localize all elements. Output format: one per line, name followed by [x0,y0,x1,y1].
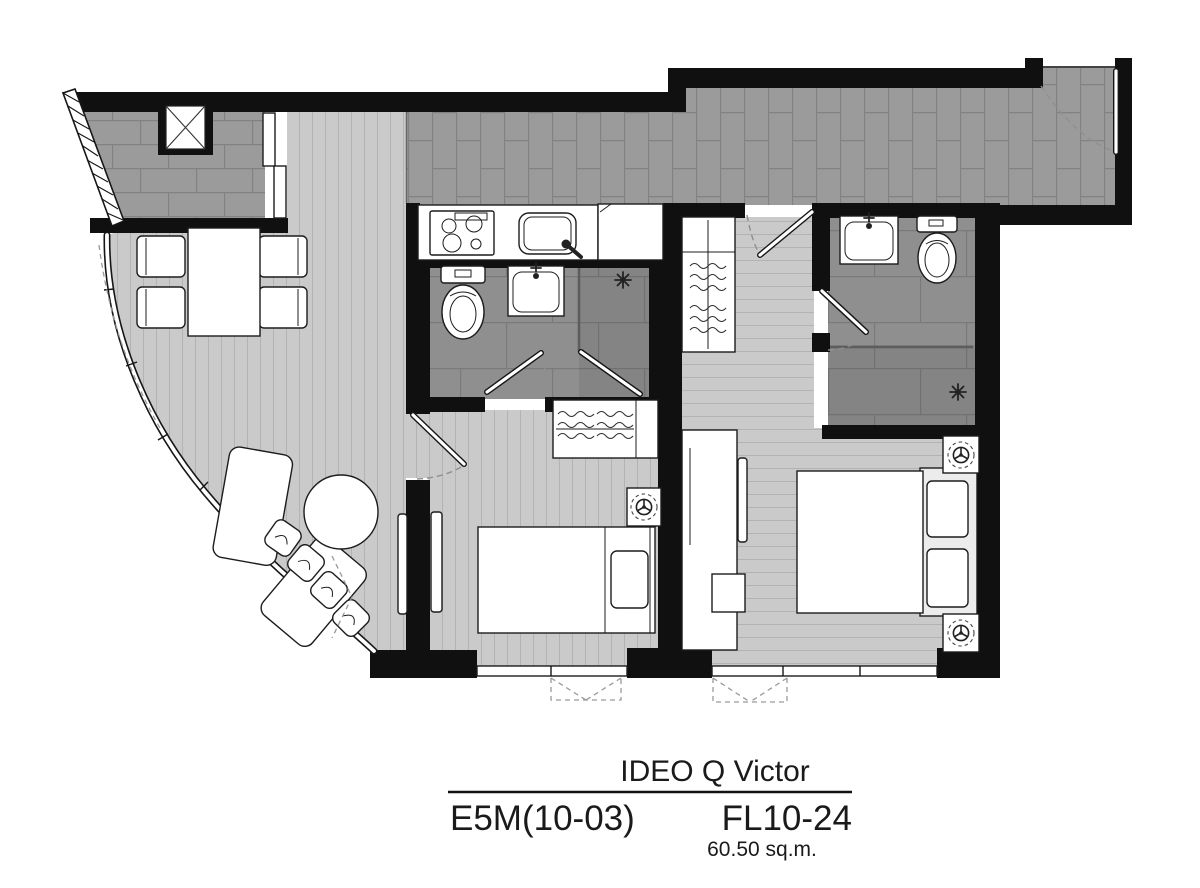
ceiling-fan-icon [943,436,979,473]
washbasin-icon [840,213,898,264]
wardrobe [682,217,735,352]
dining-chair [259,236,307,277]
kitchen-sink-icon [519,213,581,257]
dining-chair [137,287,185,328]
washbasin-icon [508,263,564,316]
master-window [712,666,937,676]
toilet-icon [441,266,485,339]
floor-plan-drawing: IDEO Q Victor E5M(10-03) FL10-24 60.50 s… [0,0,1200,888]
pillow [927,481,968,537]
dining-chair [259,287,307,328]
pillow [611,551,648,608]
unit-type-code: E5M(10-03) [450,799,635,838]
living-tv [398,514,407,614]
ceiling-fan-icon [943,614,979,652]
window-opening-indicator [551,678,621,700]
floor-plan-page: IDEO Q Victor E5M(10-03) FL10-24 60.50 s… [0,0,1200,888]
dining-table [188,228,260,336]
coffee-table [304,475,378,549]
kitchen [418,204,663,260]
bed [797,468,977,616]
bed [478,527,655,633]
unit-area: 60.50 sq.m. [707,838,817,861]
side-table [712,574,745,612]
cooktop-icon [430,211,494,255]
shower-head-icon [615,272,631,288]
shower-head-icon [950,384,966,400]
wardrobe [553,400,658,458]
title-block: IDEO Q Victor E5M(10-03) FL10-24 60.50 s… [448,755,852,861]
dining-chair [137,236,185,277]
master-tv [738,458,747,542]
corridor-floor [406,68,1115,205]
refrigerator [598,204,663,260]
floor-range: FL10-24 [722,799,852,838]
ceiling-fan-icon [627,488,661,526]
bedroom2-window [477,666,627,676]
toilet-icon [917,216,957,283]
pillow [927,549,968,607]
window-opening-indicator [713,678,787,702]
balcony-sliding-door [263,113,286,218]
bedroom2-tv [431,512,442,612]
project-title: IDEO Q Victor [620,755,810,788]
